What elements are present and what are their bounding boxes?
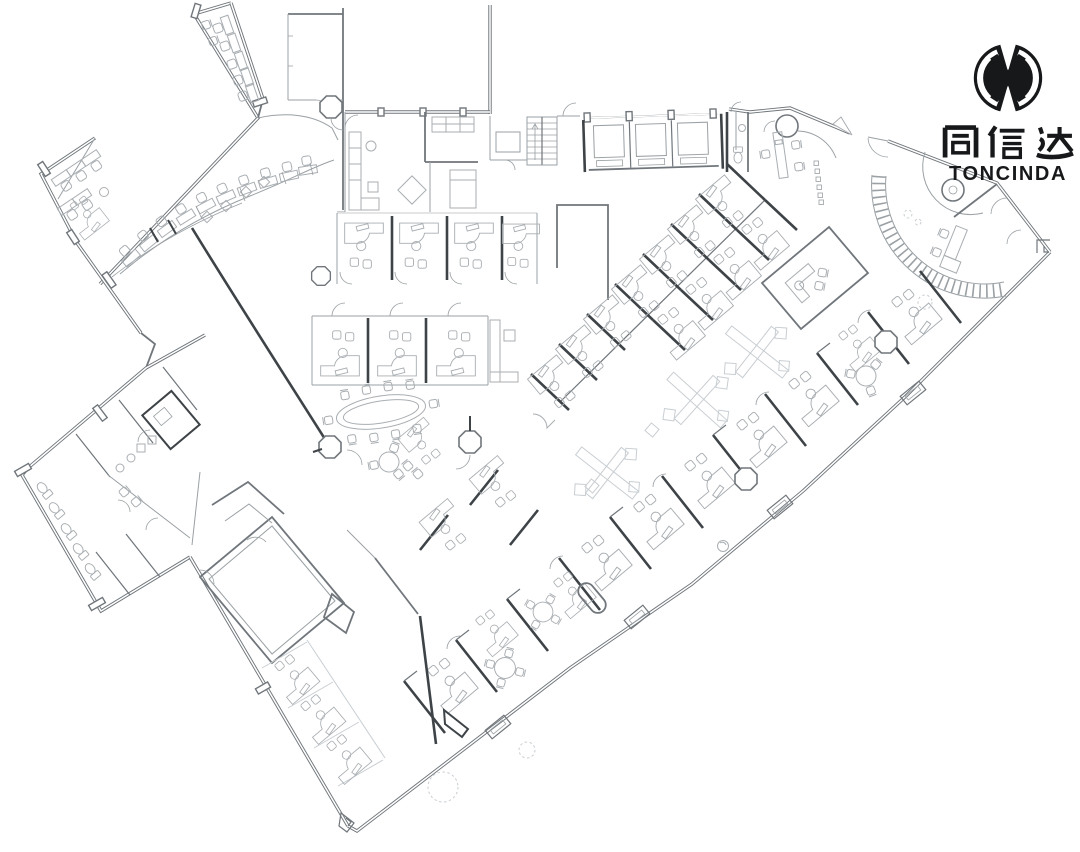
- lobby-lounge: [337, 108, 478, 212]
- cubicle-row-upper: [337, 213, 539, 284]
- stairwell: [490, 103, 580, 170]
- floor-plan-drawing: [0, 0, 1080, 852]
- x-floor-features: [573, 323, 792, 502]
- reception-desk: [927, 221, 973, 274]
- locker-trail: [814, 161, 824, 205]
- toncinda-x-mark-icon: [970, 40, 1046, 116]
- training-room: [200, 482, 436, 744]
- sofa-curve: [533, 414, 555, 428]
- left-office-wing: [51, 138, 109, 240]
- diagonal-row-small: [419, 456, 538, 556]
- door-jambs-and-brackets: [15, 3, 1050, 832]
- l-counter: [444, 710, 468, 737]
- logo-chinese-text: [942, 122, 1074, 162]
- cubicle-row-lower: [312, 303, 518, 385]
- floor-plan-page: 同信达 TONCINDA: [0, 0, 1080, 852]
- curved-workstation-row: [112, 115, 338, 277]
- entrance-vestibule: [727, 102, 888, 205]
- conference-rooms: [583, 109, 723, 173]
- entrance-column: [776, 115, 798, 137]
- toncinda-logo: 同信达 TONCINDA: [928, 40, 1080, 186]
- upper-room: [288, 36, 293, 66]
- plant: [428, 772, 458, 802]
- washroom-wing: [35, 367, 214, 595]
- building-outline: [22, 3, 1050, 831]
- manager-office: [762, 227, 868, 329]
- plant: [918, 295, 932, 309]
- security-desk: [757, 129, 805, 180]
- logo-latin-text: TONCINDA: [928, 163, 1080, 186]
- l-sofa: [490, 320, 518, 382]
- center-cluster: [313, 416, 481, 482]
